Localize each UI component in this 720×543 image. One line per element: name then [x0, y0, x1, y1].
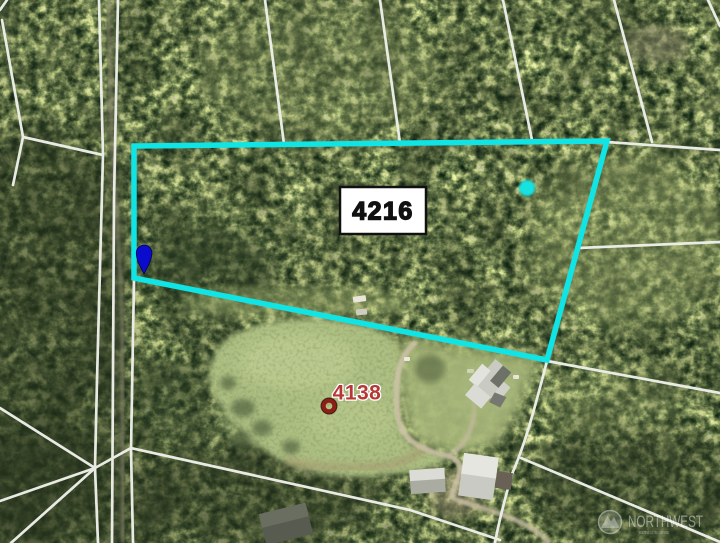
svg-text:MULTIPLE LISTING SERVICE: MULTIPLE LISTING SERVICE	[639, 530, 669, 535]
svg-text:4138: 4138	[333, 382, 382, 405]
svg-text:NORTHWEST: NORTHWEST	[628, 513, 703, 531]
svg-text:4216: 4216	[352, 198, 414, 226]
